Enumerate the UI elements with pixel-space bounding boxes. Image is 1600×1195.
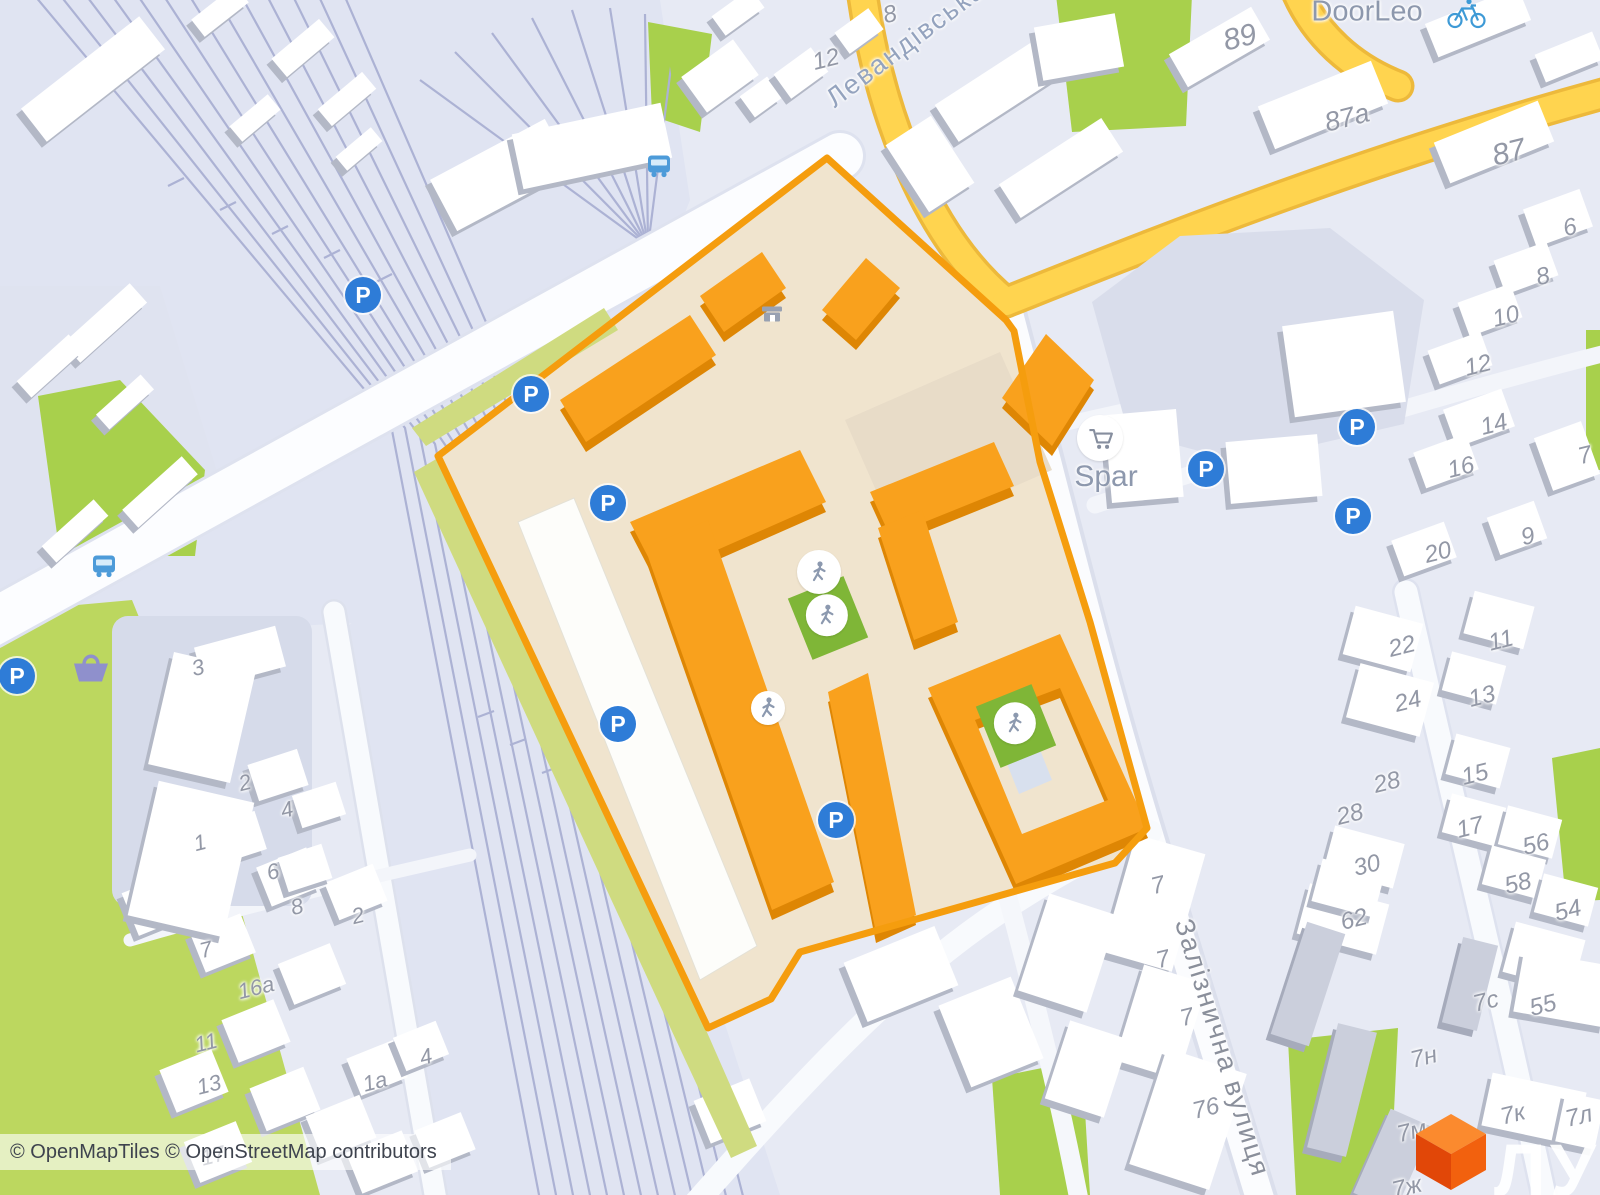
map-attribution[interactable]: © OpenMapTiles © OpenStreetMap contribut… — [0, 1134, 451, 1170]
map-canvas[interactable]: 8128987а87681012141620792224111315172828… — [0, 0, 1600, 1195]
parking-icon: P — [0, 658, 35, 694]
parking-icon: P — [345, 277, 381, 313]
bus-stop-icon — [88, 550, 120, 587]
playground-person-icon — [797, 550, 841, 594]
basket-shop-icon — [66, 649, 114, 692]
parking-icon: P — [1339, 409, 1375, 445]
lun-logo-cube — [1408, 1106, 1494, 1195]
parking-icon: P — [600, 706, 636, 742]
parking-icon: P — [1335, 498, 1371, 534]
parking-icon: P — [590, 485, 626, 521]
lun-watermark: ЛУН — [1494, 1128, 1600, 1195]
playground-person-icon — [751, 691, 785, 725]
playground-person-icon — [994, 703, 1036, 745]
supermarket-cart-icon — [1077, 415, 1123, 461]
parking-icon: P — [513, 376, 549, 412]
bicycle-parking-icon — [1445, 0, 1489, 35]
shop-storefront-icon — [759, 302, 785, 331]
parking-icon: P — [1188, 451, 1224, 487]
playground-person-icon — [806, 595, 848, 637]
bus-stop-icon — [643, 150, 675, 187]
parking-icon: P — [818, 802, 854, 838]
